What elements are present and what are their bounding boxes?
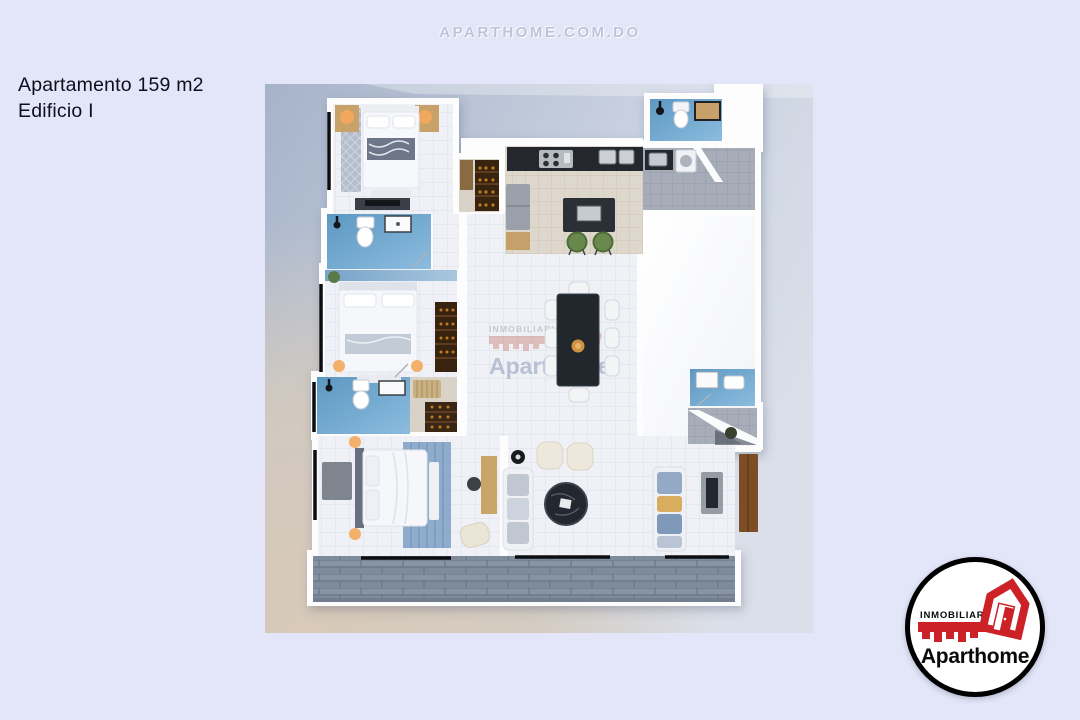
- vanity-icon: [695, 102, 720, 120]
- armchair: [537, 442, 563, 469]
- balcony-floor: [313, 556, 735, 602]
- toilet-icon: [724, 376, 744, 389]
- stool-icon: [568, 233, 587, 252]
- wall-lamp-icon: [411, 360, 423, 372]
- stool-icon: [594, 233, 613, 252]
- wall-lamp-icon: [418, 110, 432, 124]
- dining-chair: [605, 300, 619, 320]
- vanity-icon: [379, 381, 405, 395]
- floor-plan-image: INMOBILIARIA Aparthome: [265, 84, 813, 633]
- toilet-icon: [353, 380, 369, 391]
- toilet-icon: [357, 217, 374, 228]
- armchair: [567, 443, 593, 470]
- shower-icon: [334, 222, 341, 229]
- dining-chair: [605, 356, 619, 376]
- logo-brand-name: Aparthome: [905, 645, 1045, 669]
- wall-lamp-icon: [349, 436, 361, 448]
- plant-icon: [328, 271, 340, 283]
- shower-icon: [326, 385, 333, 392]
- wall-lamp-icon: [340, 110, 354, 124]
- service-sink-icon: [649, 153, 667, 166]
- listing-title: Apartamento 159 m2: [18, 72, 204, 98]
- desk: [481, 456, 497, 514]
- wall-lamp-icon: [333, 360, 345, 372]
- wall-lamp-icon: [349, 528, 361, 540]
- kitchen-sink-icon: [599, 150, 616, 164]
- dining-chair: [605, 328, 619, 348]
- desk-chair: [467, 477, 481, 491]
- dining-chair: [569, 388, 589, 402]
- top-watermark-text: APARTHOME.COM.DO: [0, 24, 1080, 41]
- vanity-icon: [696, 372, 718, 388]
- flyer-page: APARTHOME.COM.DO Apartamento 159 m2 Edif…: [0, 0, 1080, 720]
- logo-key-house-icon: INMOBILIARIA: [910, 562, 1040, 692]
- logo-name-bold: home: [974, 645, 1029, 668]
- plant-icon: [725, 427, 737, 439]
- listing-title-block: Apartamento 159 m2 Edificio I: [18, 72, 204, 124]
- shower-icon: [656, 107, 664, 115]
- listing-subtitle: Edificio I: [18, 98, 204, 124]
- aparthome-logo: INMOBILIARIA Aparthome: [905, 557, 1045, 697]
- bathroom-a-floor: [327, 214, 431, 269]
- hallway-floor: [433, 214, 459, 269]
- fridge-icon: [506, 184, 530, 230]
- logo-name-regular: Apart: [921, 645, 974, 668]
